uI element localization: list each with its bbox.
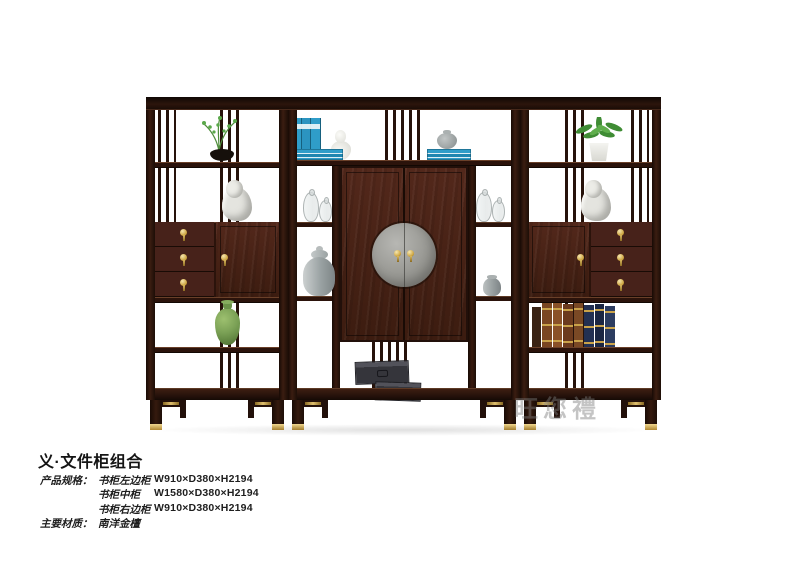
drawer-pull (617, 254, 624, 267)
jar-body (303, 257, 335, 296)
base-shelf (146, 388, 288, 400)
drawer-pull (617, 279, 624, 292)
glass-jar (319, 200, 332, 222)
top-rail (146, 97, 288, 110)
side-shelf (476, 296, 511, 301)
door-and-drawer-case (528, 222, 653, 297)
slat-screen (385, 110, 425, 160)
drawer-pull (617, 229, 624, 242)
lion-figurine (222, 187, 252, 221)
shelf (149, 162, 285, 168)
door-pull (577, 254, 584, 267)
right-side-cabinet (520, 97, 661, 430)
lidded-gray-jar (303, 246, 335, 296)
stacked-blue-books (427, 149, 471, 160)
left-side-cabinet (146, 97, 288, 430)
glass-jar (303, 192, 319, 222)
frame-post (146, 97, 155, 400)
spec-item: 书柜左边柜 (98, 473, 154, 487)
leg (645, 400, 657, 424)
inner-leg (480, 400, 486, 418)
specs-label: 产品规格： (40, 473, 98, 487)
material-value: 南洋金檀 (98, 516, 154, 530)
gray-jar (437, 133, 457, 149)
book-spine (553, 303, 562, 347)
inner-leg (180, 400, 186, 418)
spec-size: W910×D380×H2194 (154, 473, 259, 487)
floor-shadow (148, 424, 660, 436)
spec-item: 书柜右边柜 (98, 502, 154, 516)
inner-leg (621, 400, 627, 418)
potted-plant-icon (574, 117, 624, 147)
spec-size: W910×D380×H2194 (154, 502, 259, 516)
brass-accent (255, 402, 271, 405)
drawer-pull (180, 229, 187, 242)
shelf (149, 297, 285, 303)
brass-accent (305, 402, 321, 405)
shelf (149, 347, 285, 353)
shelf (523, 347, 658, 353)
side-shelf (476, 222, 511, 227)
catalog-page: 旺您禮 义·文件柜组合 产品规格： 书柜左边柜 W910×D380×H2194 … (0, 0, 800, 566)
book-spine (563, 304, 573, 347)
book-spine (542, 303, 552, 347)
spec-table: 产品规格： 书柜左边柜 W910×D380×H2194 书柜中柜 W1580×D… (40, 473, 259, 531)
book-row (532, 301, 616, 347)
inner-leg (248, 400, 254, 418)
top-rail (520, 97, 661, 110)
leg (272, 400, 284, 424)
material-label: 主要材质： (40, 516, 98, 530)
brass-accent (487, 402, 503, 405)
door-pull (394, 250, 401, 263)
drawer-pull (180, 279, 187, 292)
shelf (523, 162, 658, 168)
side-shelf (297, 222, 332, 227)
leg (150, 400, 162, 424)
lion-figurine (581, 187, 611, 221)
book-spine (574, 303, 583, 347)
glass-jar (492, 200, 505, 222)
spec-size-empty (154, 516, 259, 530)
glass-jar (476, 192, 492, 222)
book-spine (532, 307, 541, 347)
two-door-cabinet (340, 166, 468, 342)
frame-post (279, 97, 288, 400)
spec-item: 书柜中柜 (98, 487, 154, 501)
brass-accent (163, 402, 179, 405)
frame-post (652, 97, 661, 400)
brass-accent (628, 402, 644, 405)
frame-post (511, 97, 520, 400)
glass-jar-set (301, 184, 335, 222)
inner-leg (322, 400, 328, 418)
door-pull (407, 250, 414, 263)
spec-label-empty (40, 487, 98, 501)
top-rail (288, 97, 520, 110)
drawer-pull (180, 254, 187, 267)
white-planter-pot (588, 143, 610, 161)
round-metal-medallion (372, 223, 436, 287)
product-title: 义·文件柜组合 (38, 448, 143, 472)
cabinet-combination-photo (146, 97, 661, 430)
bonsai-plant-icon (196, 115, 242, 151)
frame-post (288, 97, 297, 400)
book-spine (584, 305, 594, 347)
drawer-and-door-case (154, 222, 280, 297)
side-shelf (297, 296, 332, 301)
book-spine (605, 306, 615, 347)
brand-watermark: 旺您禮 (514, 389, 601, 424)
medallion-split-line (404, 223, 405, 287)
frame-post (520, 97, 529, 400)
spec-size: W1580×D380×H2194 (154, 487, 259, 501)
base-shelf (288, 388, 520, 400)
leg (292, 400, 304, 424)
spec-label-empty (40, 502, 98, 516)
book-spine (595, 304, 604, 347)
door-pull (221, 254, 228, 267)
stacked-blue-books (293, 149, 343, 160)
glass-jar-set (474, 184, 508, 222)
small-gray-jar (483, 278, 501, 296)
center-cabinet (288, 97, 520, 430)
